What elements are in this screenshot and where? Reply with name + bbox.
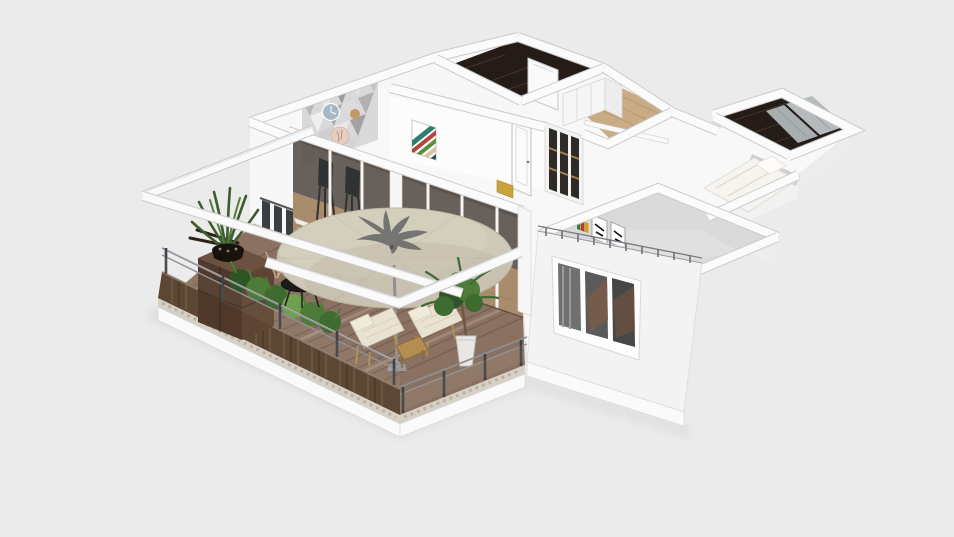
wood-knob-decor bbox=[350, 109, 360, 119]
floorplan-3d-viewport[interactable] bbox=[0, 0, 954, 537]
shelving-unit[interactable] bbox=[545, 122, 583, 205]
door-knob bbox=[527, 161, 530, 164]
corner-pillar bbox=[518, 206, 531, 316]
floorplan-3d-render[interactable] bbox=[0, 0, 954, 537]
hall-door[interactable] bbox=[512, 118, 531, 196]
